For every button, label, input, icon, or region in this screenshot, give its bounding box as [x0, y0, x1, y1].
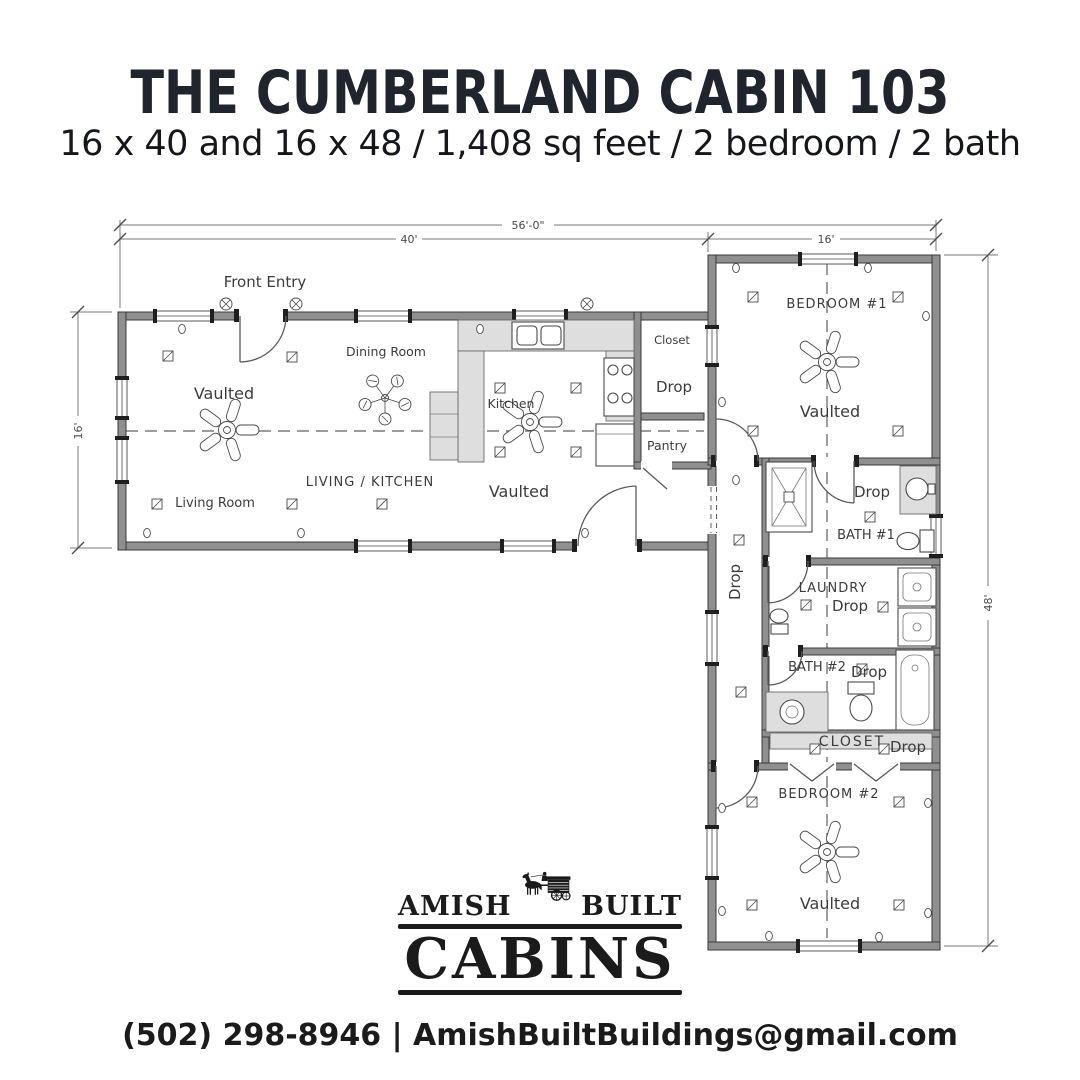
label-vaulted-kitchen: Vaulted — [489, 482, 549, 501]
front-entry-door — [240, 316, 286, 362]
refrigerator — [596, 424, 634, 466]
label-bath2: BATH #2 — [788, 660, 846, 675]
label-front-entry: Front Entry — [224, 273, 307, 291]
label-dining-room: Dining Room — [346, 344, 426, 359]
label-drop-closet-upper: Drop — [656, 378, 692, 396]
label-closet-upper: Closet — [654, 333, 690, 347]
label-bath1: BATH #1 — [837, 528, 895, 543]
label-drop-hallway: Drop — [726, 564, 744, 600]
logo-word-amish: AMISH — [398, 893, 511, 922]
logo-word-cabins: CABINS — [398, 931, 682, 988]
ceiling-fan-icon — [198, 398, 259, 462]
bath1-vanity — [900, 466, 936, 514]
label-kitchen: Kitchen — [488, 396, 535, 411]
dim-overall-width: 56'-0" — [511, 219, 544, 232]
horse-wagon-icon — [517, 850, 575, 922]
bath1-door — [814, 461, 854, 503]
label-drop-closet: Drop — [890, 738, 926, 756]
label-drop-laundry: Drop — [832, 597, 868, 615]
chandelier-icon — [357, 373, 412, 425]
label-vaulted-living: Vaulted — [194, 384, 254, 403]
bathtub — [896, 650, 934, 730]
dim-left-depth: 16' — [72, 422, 85, 439]
label-vaulted-bedroom1: Vaulted — [800, 402, 860, 421]
dim-right-width: 16' — [817, 233, 834, 246]
ceiling-fans — [198, 330, 859, 884]
bath1-toilet — [897, 530, 934, 552]
shower — [766, 462, 812, 532]
label-living-kitchen: LIVING / KITCHEN — [306, 475, 435, 490]
label-drop-bath1: Drop — [854, 483, 890, 501]
label-bedroom2: BEDROOM #2 — [778, 787, 879, 802]
label-vaulted-bedroom2: Vaulted — [800, 894, 860, 913]
bedroom1-door — [716, 419, 758, 461]
stove — [604, 358, 634, 416]
label-laundry: LAUNDRY — [799, 581, 868, 596]
label-drop-bath2: Drop — [851, 663, 887, 681]
dim-left-width: 40' — [400, 233, 417, 246]
kitchen-sink — [512, 322, 564, 349]
label-pantry: Pantry — [647, 438, 688, 453]
bath2-toilet — [848, 682, 874, 721]
bath2-vanity — [766, 692, 828, 732]
brand-logo: AMISH — [398, 850, 682, 997]
pantry-door — [643, 468, 667, 489]
contact-info: (502) 298-8946 | AmishBuiltBuildings@gma… — [0, 1018, 1080, 1053]
washer-dryer — [898, 568, 936, 646]
logo-word-built: BUILT — [581, 893, 682, 922]
label-bedroom1: BEDROOM #1 — [786, 297, 887, 312]
flyer-page: THE CUMBERLAND CABIN 103 16 x 40 and 16 … — [0, 0, 1080, 1080]
label-closet: CLOSET — [819, 734, 885, 750]
dim-right-depth: 48' — [982, 594, 995, 611]
ceiling-fan-icon — [798, 820, 859, 884]
ceiling-fan-icon — [798, 330, 859, 394]
label-living-room: Living Room — [175, 496, 255, 511]
laundry-tub — [770, 609, 788, 634]
